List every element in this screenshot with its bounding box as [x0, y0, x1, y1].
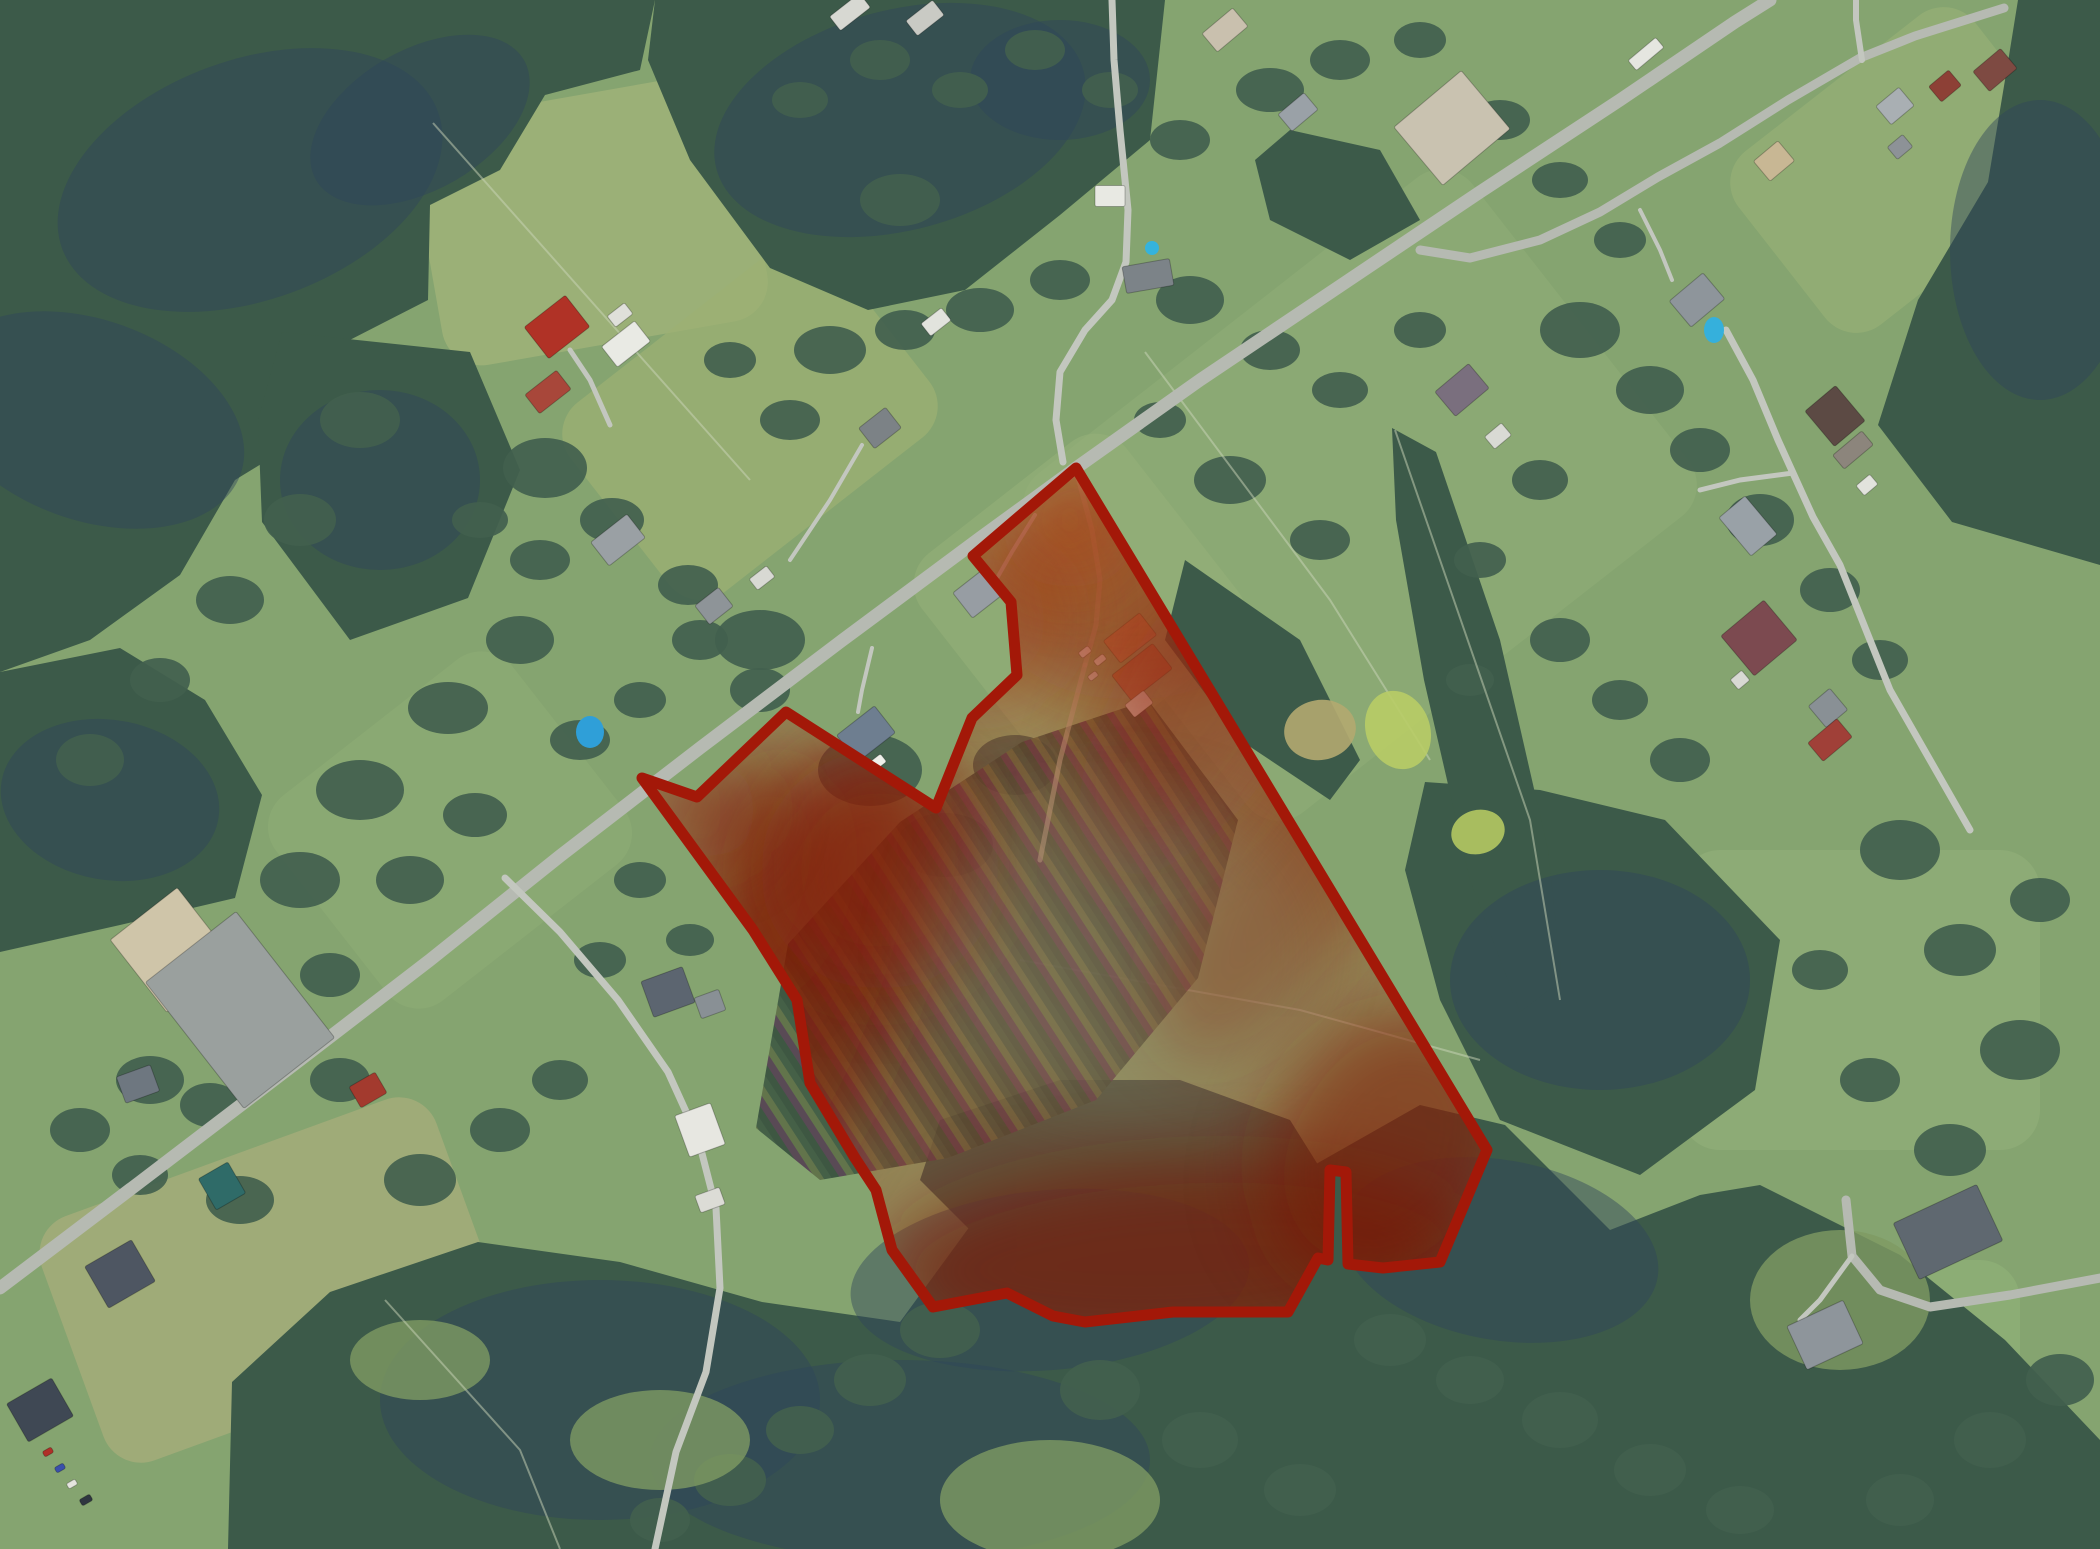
tree-clump — [1005, 30, 1065, 70]
tree-clump — [486, 616, 554, 664]
tree-clump — [130, 658, 190, 702]
tree-clump — [666, 924, 714, 956]
forest-clearing — [570, 1390, 750, 1490]
tree-clump — [260, 852, 340, 908]
tree-clump — [1436, 1356, 1504, 1404]
tree-clump — [503, 438, 587, 498]
tree-clump — [1194, 456, 1266, 504]
tree-clump — [1980, 1020, 2060, 1080]
forest-shadow — [1450, 870, 1750, 1090]
tree-clump — [1792, 950, 1848, 990]
tree-clump — [614, 862, 666, 898]
tree-clump — [1522, 1392, 1598, 1448]
tree-clump — [320, 392, 400, 448]
tree-clump — [376, 856, 444, 904]
forest-clearing — [350, 1320, 490, 1400]
tree-clump — [1954, 1412, 2026, 1468]
tree-clump — [614, 682, 666, 718]
building — [1095, 186, 1125, 207]
tree-clump — [56, 734, 124, 786]
tree-clump — [766, 1406, 834, 1454]
aerial-imagery-canvas[interactable] — [0, 0, 2100, 1549]
tree-clump — [384, 1154, 456, 1206]
swimming-pool — [1145, 241, 1159, 255]
tree-clump — [860, 174, 940, 226]
tree-clump — [1670, 428, 1730, 472]
tree-clump — [760, 400, 820, 440]
tree-clump — [300, 953, 360, 997]
tree-clump — [850, 40, 910, 80]
tree-clump — [1532, 162, 1588, 198]
tree-clump — [1840, 1058, 1900, 1102]
tree-clump — [2010, 878, 2070, 922]
tree-clump — [1394, 312, 1446, 348]
tree-clump — [1264, 1464, 1336, 1516]
tree-clump — [452, 502, 508, 538]
tree-clump — [2026, 1354, 2094, 1406]
tree-clump — [510, 540, 570, 580]
tree-clump — [1860, 820, 1940, 880]
tree-clump — [1914, 1124, 1986, 1176]
swimming-pool — [1704, 317, 1724, 343]
tree-clump — [50, 1108, 110, 1152]
tree-clump — [443, 793, 507, 837]
tree-clump — [1162, 1412, 1238, 1468]
tree-clump — [1512, 460, 1568, 500]
tree-clump — [1650, 738, 1710, 782]
tree-clump — [946, 288, 1014, 332]
tree-clump — [470, 1108, 530, 1152]
tree-clump — [1614, 1444, 1686, 1496]
tree-clump — [794, 326, 866, 374]
tree-clump — [1594, 222, 1646, 258]
tree-clump — [1312, 372, 1368, 408]
tree-clump — [932, 72, 988, 108]
tree-clump — [1706, 1486, 1774, 1534]
tree-clump — [704, 342, 756, 378]
tree-clump — [1150, 120, 1210, 160]
tree-clump — [1060, 1360, 1140, 1420]
tree-clump — [1394, 22, 1446, 58]
tree-clump — [1866, 1474, 1934, 1526]
tree-clump — [1530, 618, 1590, 662]
tree-clump — [1616, 366, 1684, 414]
tree-clump — [1924, 924, 1996, 976]
tree-clump — [532, 1060, 588, 1100]
tree-clump — [1082, 72, 1138, 108]
satellite-map-view[interactable] — [0, 0, 2100, 1549]
tree-clump — [1454, 542, 1506, 578]
tree-clump — [772, 82, 828, 118]
tree-clump — [1310, 40, 1370, 80]
tree-clump — [834, 1354, 906, 1406]
tree-clump — [1030, 260, 1090, 300]
tree-clump — [1446, 664, 1494, 696]
tree-clump — [408, 682, 488, 734]
tree-clump — [264, 494, 336, 546]
tree-clump — [1540, 302, 1620, 358]
tree-clump — [715, 610, 805, 670]
swimming-pool — [576, 716, 604, 748]
tree-clump — [1592, 680, 1648, 720]
tree-clump — [1290, 520, 1350, 560]
tree-clump — [316, 760, 404, 820]
tree-clump — [1354, 1314, 1426, 1366]
tree-clump — [196, 576, 264, 624]
